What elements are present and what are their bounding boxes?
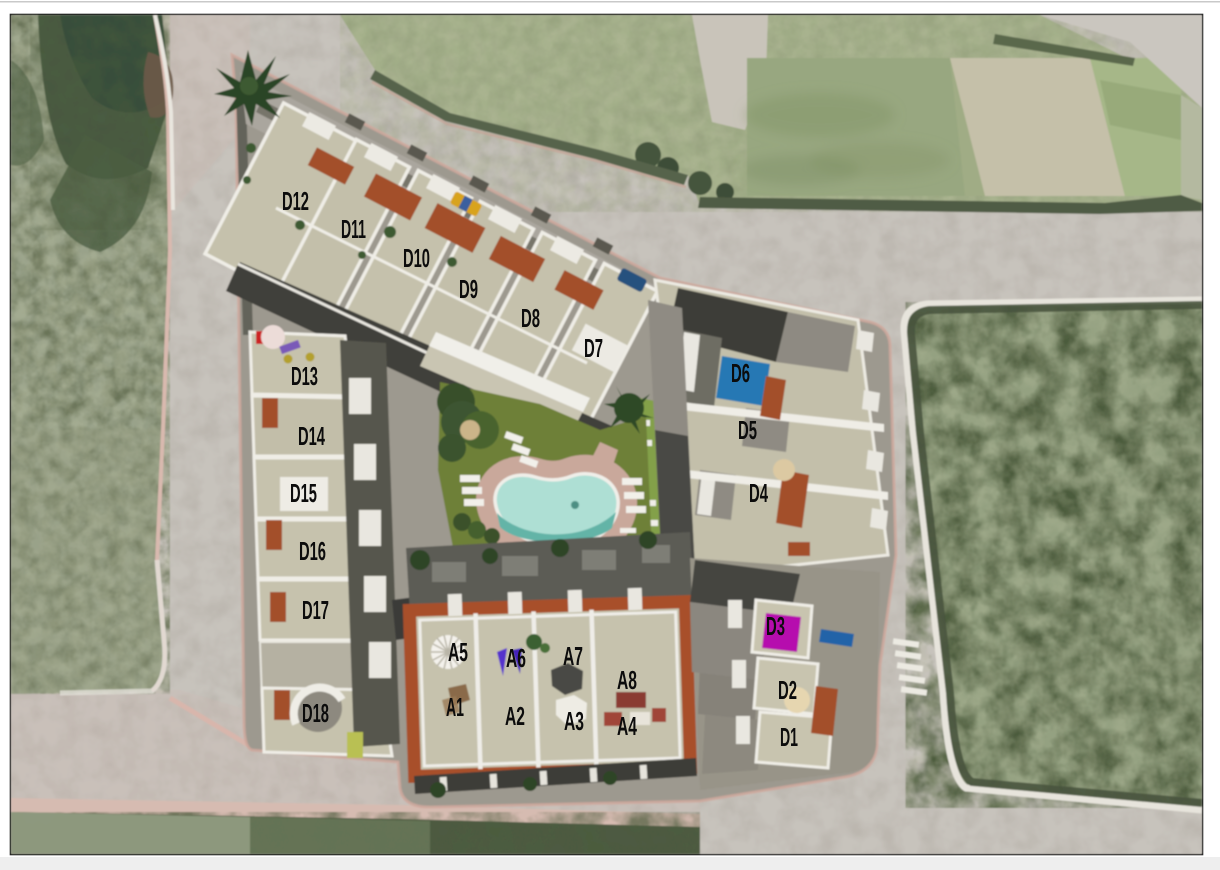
svg-text:D2: D2: [778, 675, 797, 705]
svg-text:A1: A1: [446, 692, 464, 722]
svg-text:D17: D17: [302, 595, 329, 625]
svg-text:D8: D8: [521, 303, 540, 333]
svg-text:D5: D5: [738, 415, 757, 445]
svg-text:A4: A4: [617, 711, 637, 741]
svg-text:D12: D12: [282, 186, 309, 216]
svg-text:D3: D3: [766, 611, 785, 641]
svg-text:D9: D9: [459, 274, 478, 304]
svg-text:D16: D16: [299, 536, 326, 566]
svg-text:A8: A8: [617, 665, 637, 695]
svg-text:D10: D10: [403, 243, 430, 273]
svg-text:D18: D18: [302, 698, 329, 728]
svg-text:A7: A7: [563, 641, 583, 671]
svg-text:D14: D14: [298, 421, 325, 451]
svg-text:D13: D13: [291, 361, 318, 391]
svg-text:D15: D15: [290, 478, 317, 508]
svg-text:D1: D1: [780, 722, 798, 752]
svg-text:A5: A5: [448, 637, 468, 667]
svg-text:D4: D4: [749, 478, 768, 508]
svg-text:D6: D6: [731, 358, 750, 388]
svg-text:D11: D11: [341, 214, 366, 244]
svg-text:A3: A3: [564, 706, 584, 736]
svg-text:D7: D7: [584, 333, 603, 363]
svg-text:A2: A2: [505, 701, 525, 731]
svg-text:A6: A6: [506, 643, 526, 673]
